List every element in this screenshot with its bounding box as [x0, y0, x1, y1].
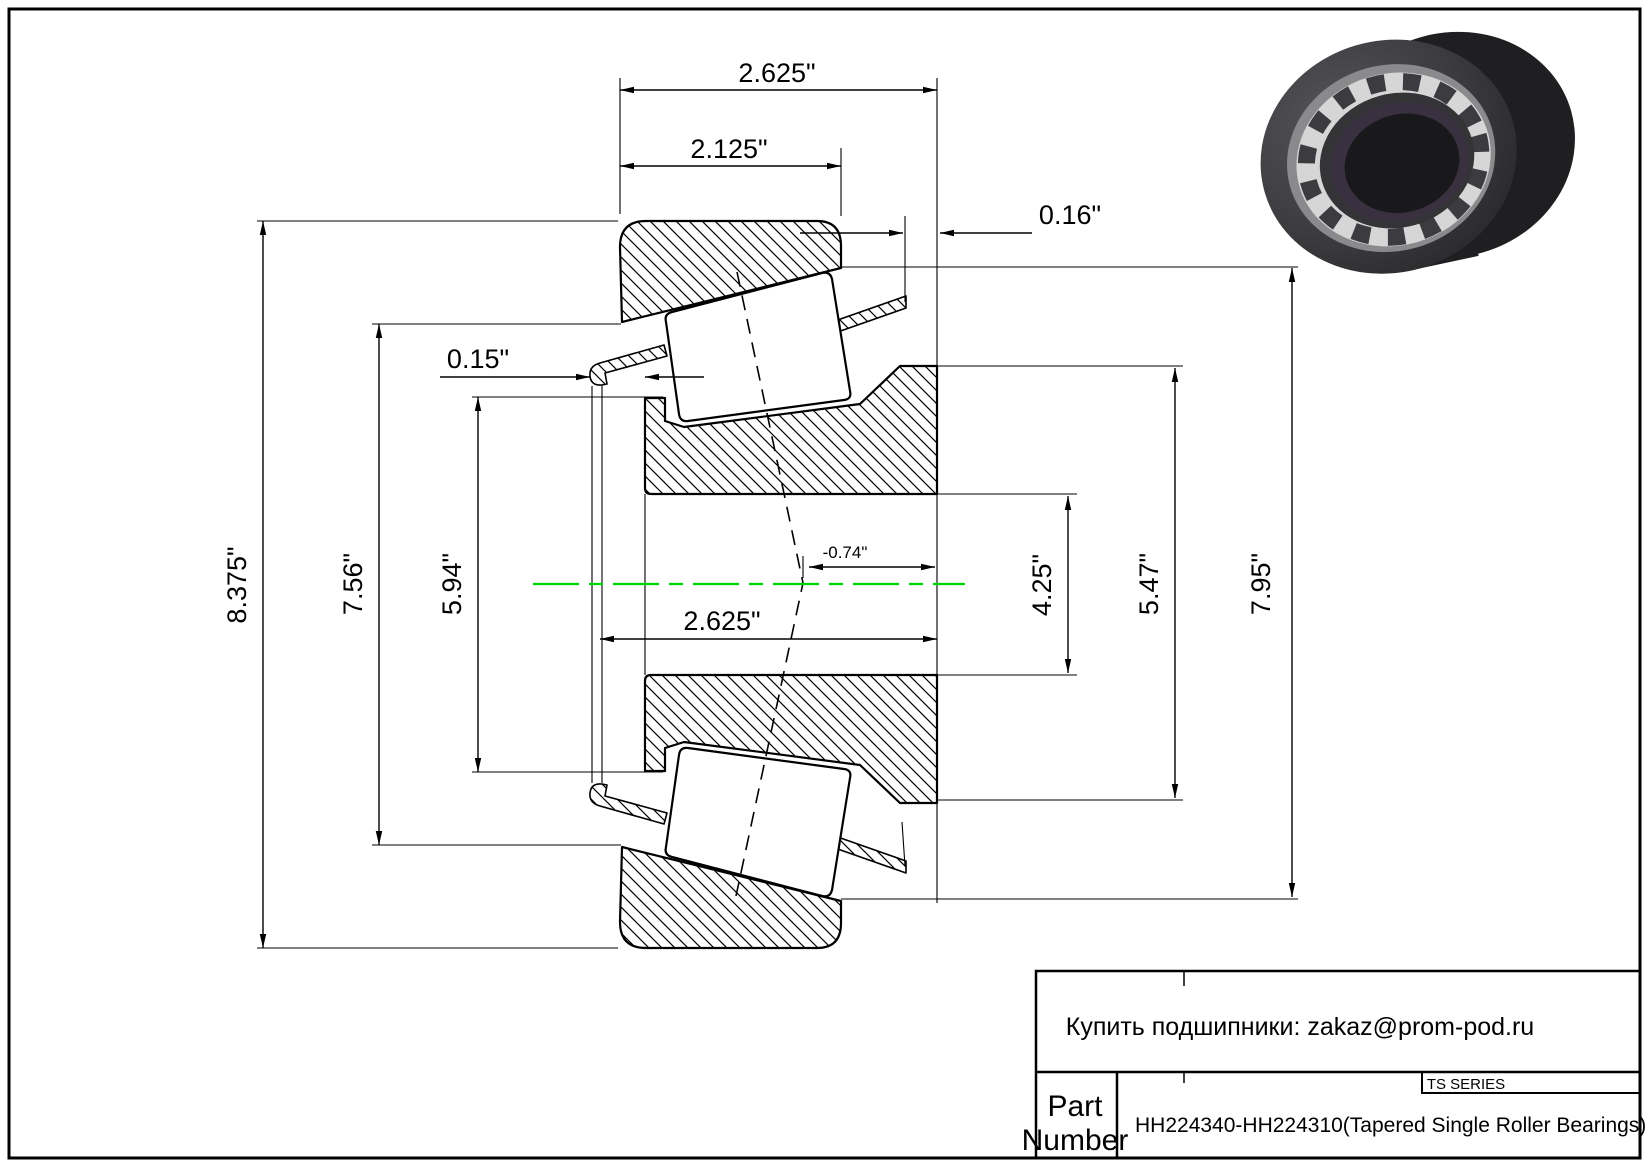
- dim-cage-left-protrusion: 0.15": [447, 344, 509, 374]
- dim-cone-front-diameter: 5.94": [437, 553, 467, 615]
- dim-cone-rib-diameter: 5.47": [1134, 553, 1164, 615]
- part-label-line2: Number: [1022, 1124, 1129, 1157]
- dim-bore-diameter: 4.25": [1027, 554, 1057, 616]
- bearing-drawing-svg: 2.625" 2.125" 0.16" 0.15" 8.375" 7.56" 5…: [0, 0, 1649, 1167]
- part-label-line1: Part: [1047, 1090, 1103, 1123]
- part-number: HH224340-HH224310(Tapered Single Roller …: [1135, 1114, 1646, 1137]
- dim-cup-large-inner-diameter: 7.95": [1246, 553, 1276, 615]
- contact-note: Купить подшипники: zakaz@prom-pod.ru: [1066, 1013, 1534, 1041]
- dim-cup-total-width: 2.625": [738, 58, 815, 88]
- series-label: TS SERIES: [1427, 1076, 1505, 1093]
- dim-outer-diameter: 8.375": [222, 546, 252, 623]
- dim-cup-front-width: 2.125": [690, 134, 767, 164]
- dim-effective-center-offset: -0.74": [823, 543, 868, 562]
- dim-cup-small-inner-diameter: 7.56": [338, 553, 368, 615]
- drawing-page: 2.625" 2.125" 0.16" 0.15" 8.375" 7.56" 5…: [0, 0, 1649, 1167]
- dim-cage-right-protrusion: 0.16": [1039, 200, 1101, 230]
- dim-cone-width: 2.625": [683, 606, 760, 636]
